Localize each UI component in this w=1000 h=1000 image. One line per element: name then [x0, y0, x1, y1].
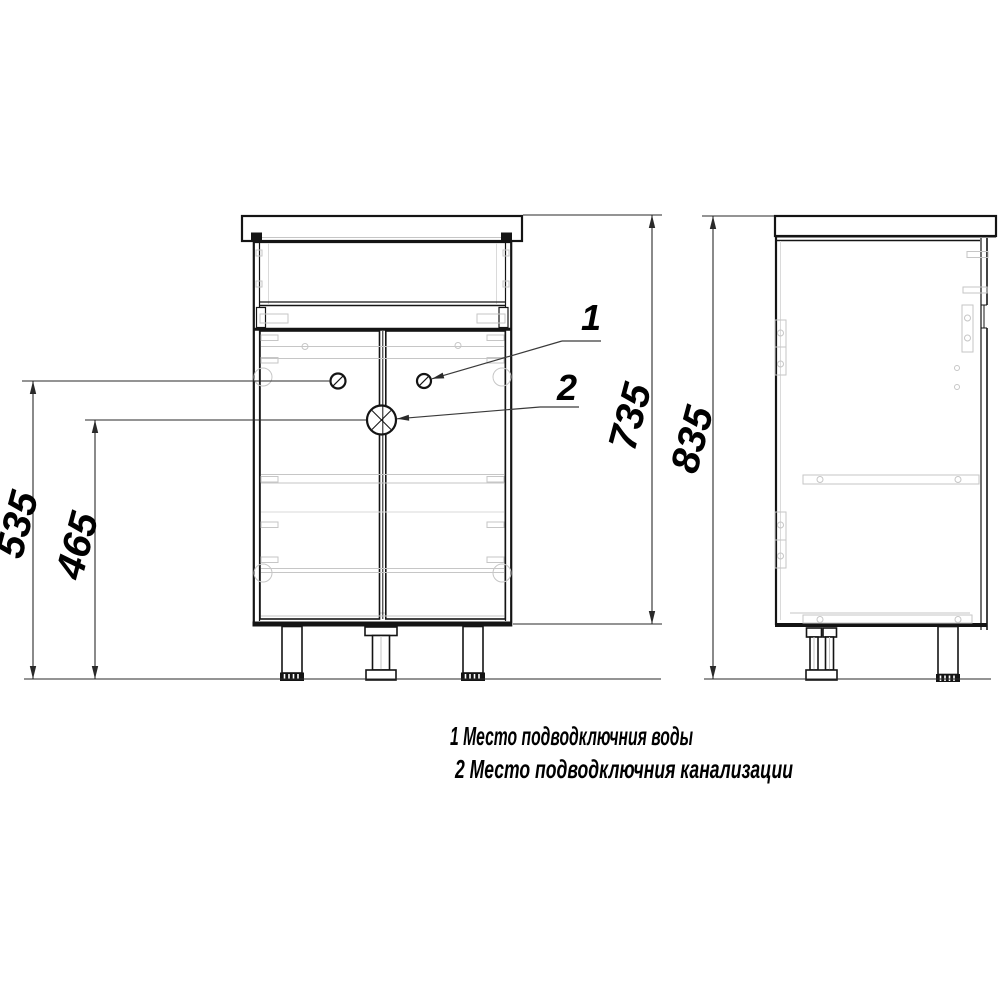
dimension-735: 735	[513, 215, 662, 624]
side-countertop	[775, 216, 996, 241]
front-countertop	[242, 216, 522, 242]
front-center-leg	[365, 627, 397, 680]
sewage-connection-point	[367, 406, 396, 435]
front-view	[242, 216, 522, 681]
legend-line-1: 1 Место подводключния воды	[450, 721, 693, 751]
legend-line-2: 2 Место подводключния канализации	[454, 754, 793, 784]
side-back-leg	[936, 627, 960, 683]
water-connection-point-left	[331, 374, 346, 389]
water-connection-point-right	[417, 374, 431, 388]
dimension-835: 835	[663, 216, 774, 679]
side-carcass	[775, 237, 988, 630]
dim-label-535: 535	[0, 486, 48, 563]
callout-2-label: 2	[556, 367, 577, 408]
front-left-leg	[280, 627, 304, 682]
side-legs	[806, 627, 960, 683]
side-front-leg	[806, 628, 837, 680]
cabinet-dimension-drawing: 535 465 735 835 1 2 1	[0, 0, 1000, 1000]
front-legs	[280, 627, 485, 682]
front-doors	[254, 331, 511, 619]
callout-1-label: 1	[581, 297, 601, 338]
legend: 1 Место подводключния воды 2 Место подво…	[450, 721, 793, 784]
technical-drawing-page: 535 465 735 835 1 2 1	[0, 0, 1000, 1000]
front-right-leg	[461, 627, 485, 682]
side-view	[775, 216, 996, 682]
dim-label-465: 465	[47, 507, 107, 585]
